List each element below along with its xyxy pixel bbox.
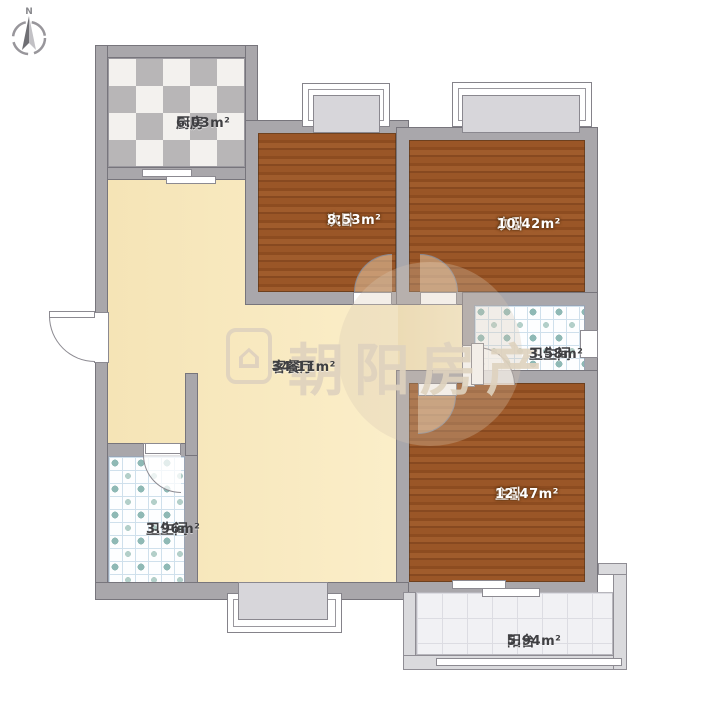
balcony-wall <box>598 563 627 575</box>
room-area: 5.94m² <box>507 634 561 650</box>
bay-window-sill <box>462 95 580 133</box>
floorplan: ⌂ 朝阳房产 厨房 6.03m² 次卧 8.53m² 次卧 10.42m² 客餐… <box>0 0 720 720</box>
room-area: 12.47m² <box>495 487 559 503</box>
bay-window-sill <box>313 95 380 133</box>
entrance-door-opening <box>94 312 109 363</box>
bedroom-b-door-opening <box>420 292 457 305</box>
kitchen-floor <box>108 58 245 167</box>
balcony-wall <box>613 563 627 670</box>
compass-n-label: N <box>25 7 33 17</box>
entrance-door-arc <box>49 316 95 362</box>
bay-window-sill <box>238 582 328 620</box>
wall <box>185 373 198 456</box>
kitchen-sliding-door <box>166 176 216 184</box>
master-door-opening <box>418 383 457 396</box>
room-area: 10.42m² <box>497 217 561 233</box>
hallway-floor <box>398 305 462 371</box>
bathroom-left-door-panel <box>145 443 181 454</box>
room-area: 3.58m² <box>529 347 583 363</box>
room-area: 3.96m² <box>146 522 200 538</box>
balcony-window <box>436 658 622 666</box>
bathroom-right-door-panel <box>471 343 484 385</box>
master-balcony-sliding-door <box>482 588 540 597</box>
room-area: 8.53m² <box>327 213 381 229</box>
bedroom-a-door-opening <box>353 292 392 305</box>
wall <box>95 45 258 58</box>
entrance-door-panel <box>49 311 95 318</box>
compass-north-icon: N <box>6 4 52 66</box>
room-area: 6.03m² <box>176 116 230 132</box>
room-area: 34.11m² <box>272 360 336 376</box>
